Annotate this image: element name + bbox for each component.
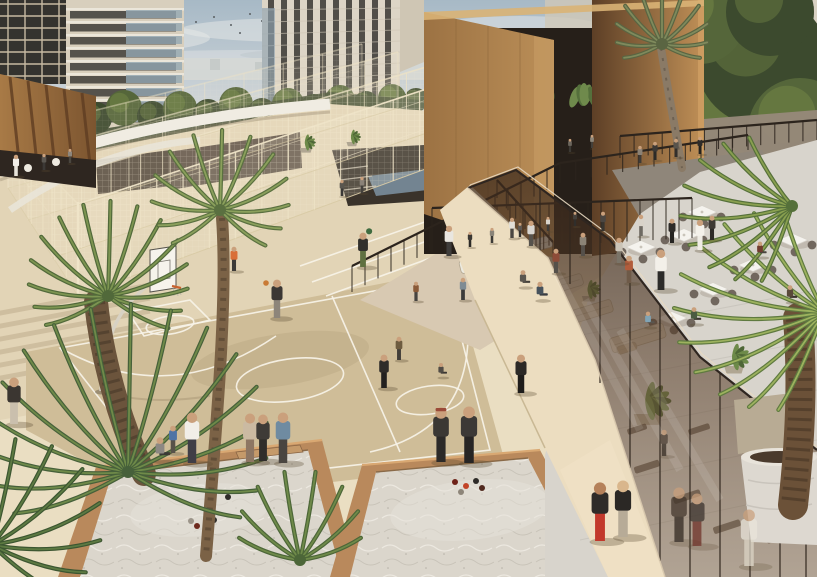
cafe-table <box>24 164 32 172</box>
basketball-on-ground <box>263 280 269 286</box>
cafe-table <box>52 158 60 166</box>
rendering-canvas: Architectural rendering: residential spo… <box>0 0 817 577</box>
tower-left-glass <box>0 0 66 84</box>
scene <box>0 0 817 577</box>
